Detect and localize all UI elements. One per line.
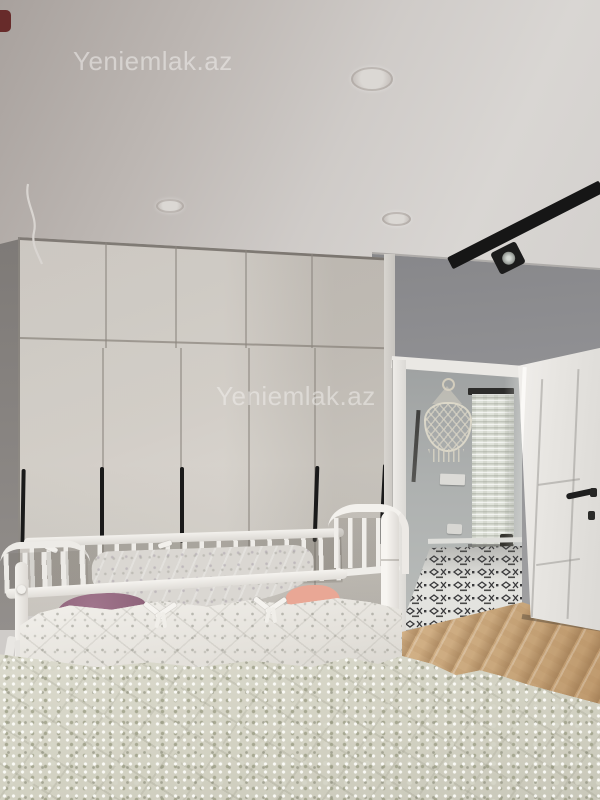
door-groove: [536, 558, 580, 566]
wardrobe-door-seam: [245, 236, 247, 348]
door-lock: [588, 511, 595, 520]
door-groove: [531, 379, 543, 617]
red-corner-mark: [0, 10, 11, 32]
macrame-decor: [424, 402, 472, 452]
watermark: Yeniemlak.az: [73, 46, 233, 77]
light-switch: [440, 474, 465, 486]
bumper-bow: [142, 600, 182, 634]
door-handle-base: [590, 488, 597, 497]
wall-socket: [447, 524, 462, 535]
bumper-bow: [252, 595, 292, 629]
spotlight-lens: [500, 249, 517, 266]
bedroom-photo: Yeniemlak.az Yeniemlak.az: [0, 0, 600, 800]
bow-tail: [271, 607, 277, 623]
bow-tail: [161, 612, 167, 628]
wardrobe-door-seam: [105, 236, 107, 348]
hanging-wire: [22, 182, 50, 271]
watermark: Yeniemlak.az: [216, 381, 376, 412]
hallway-view: [404, 368, 522, 630]
recessed-light-icon: [351, 67, 393, 91]
wardrobe-handle: [180, 467, 184, 543]
wardrobe-handle: [100, 467, 104, 543]
crib-post-joint: [381, 559, 399, 561]
macrame-fringe: [428, 449, 464, 462]
hanging-strap: [411, 410, 420, 482]
recessed-light-icon: [156, 199, 184, 213]
recessed-light-icon: [382, 212, 411, 226]
crib-knob: [17, 585, 26, 594]
wardrobe-door-seam: [175, 236, 177, 348]
